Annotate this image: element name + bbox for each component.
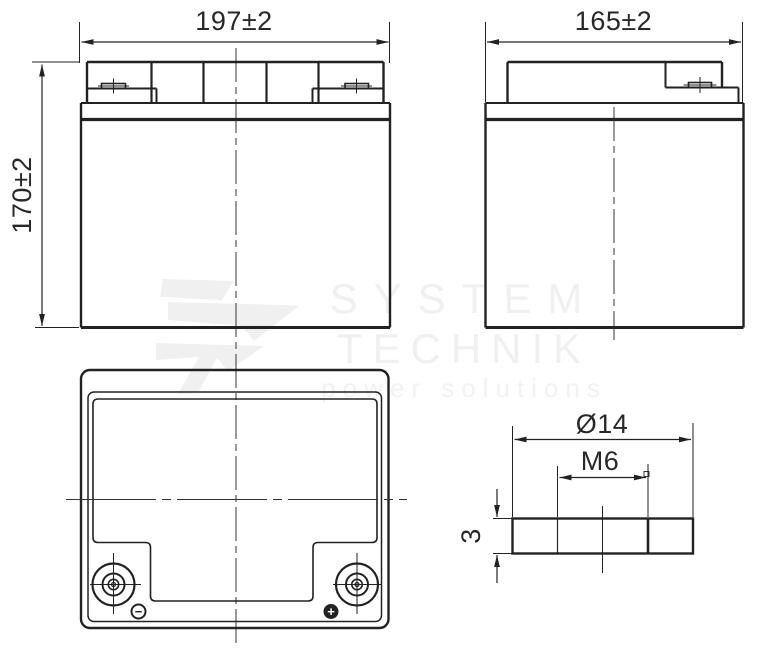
- negative-terminal: [90, 553, 141, 614]
- watermark-brand-line2: TECHNIK: [337, 325, 591, 372]
- terminal-thread-label: M6: [581, 446, 620, 476]
- front-width-dimension-label: 197±2: [195, 6, 272, 36]
- terminal-nut-section: [513, 506, 694, 573]
- front-height-dimension: 170±2: [7, 62, 80, 328]
- battery-dimension-drawing: SYSTEM TECHNIK power solutions 197±2 170…: [0, 0, 763, 665]
- positive-symbol-badge: +: [324, 604, 339, 619]
- side-width-dimension-label: 165±2: [575, 6, 652, 36]
- drawing-svg: SYSTEM TECHNIK power solutions 197±2 170…: [0, 0, 763, 665]
- top-view-inner-case: [88, 392, 382, 622]
- terminal-height-label: 3: [456, 528, 486, 544]
- side-terminal-post: [684, 77, 717, 93]
- negative-symbol-badge: −: [132, 604, 146, 619]
- front-terminal-block: [87, 62, 384, 103]
- terminal-thread-dimension: M6: [558, 446, 650, 517]
- front-left-terminal-post: [98, 79, 129, 94]
- positive-terminal: [333, 553, 382, 614]
- terminal-detail-view: Ø14 M6 3: [456, 409, 693, 583]
- minus-icon: −: [135, 604, 143, 619]
- side-terminal-block: [508, 62, 739, 103]
- watermark: SYSTEM TECHNIK power solutions: [156, 275, 607, 403]
- terminal-diameter-label: Ø14: [576, 409, 629, 439]
- watermark-brand-line1: SYSTEM: [330, 275, 599, 322]
- front-height-dimension-label: 170±2: [7, 156, 37, 233]
- front-right-terminal-post: [341, 79, 372, 94]
- terminal-height-dimension: 3: [456, 489, 512, 583]
- front-width-dimension: 197±2: [80, 6, 390, 63]
- brand-logo-lightning-icon: [156, 279, 299, 394]
- plus-icon: +: [327, 604, 335, 619]
